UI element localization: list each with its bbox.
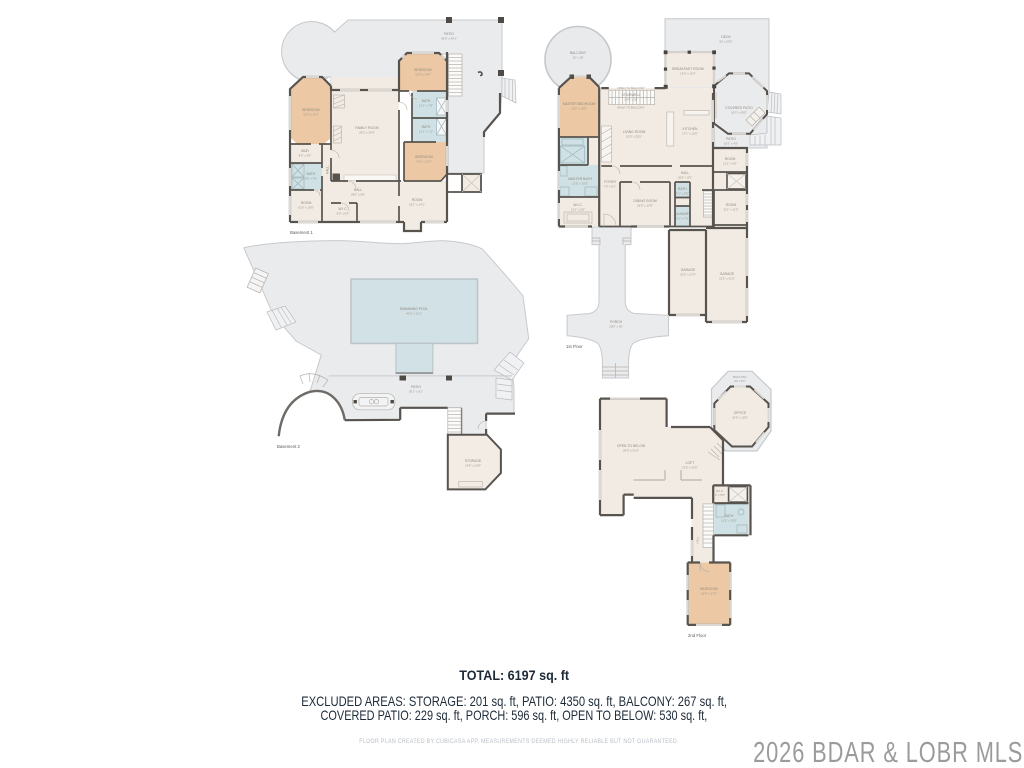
svg-text:HALL: HALL xyxy=(354,188,363,192)
svg-text:13'5" x 16'5": 13'5" x 16'5" xyxy=(682,466,698,470)
svg-text:20' x 18': 20' x 18' xyxy=(573,56,584,60)
svg-text:MASTER BEDROOM: MASTER BEDROOM xyxy=(563,102,596,106)
svg-text:29'2" x 30'9": 29'2" x 30'9" xyxy=(359,131,375,135)
svg-text:BALCONY: BALCONY xyxy=(570,51,587,55)
svg-text:PATIO: PATIO xyxy=(726,137,736,141)
svg-text:W.I.C.: W.I.C. xyxy=(573,203,582,207)
svg-text:ROOM: ROOM xyxy=(725,157,736,161)
svg-text:13'5" x 10'5": 13'5" x 10'5" xyxy=(572,182,588,186)
svg-text:OFFICE: OFFICE xyxy=(734,411,747,415)
svg-text:28'5" x 40': 28'5" x 40' xyxy=(609,325,623,329)
svg-text:12'1" x 7'1": 12'1" x 7'1" xyxy=(419,130,433,134)
svg-text:24'5" x 21'5": 24'5" x 21'5" xyxy=(623,449,639,453)
svg-text:ROOM: ROOM xyxy=(412,198,423,202)
svg-text:BATH: BATH xyxy=(422,99,431,103)
svg-text:8'0" x 6'9": 8'0" x 6'9" xyxy=(299,154,312,158)
svg-text:BATH: BATH xyxy=(307,172,316,176)
svg-text:9'6" x 7'6": 9'6" x 7'6" xyxy=(305,177,318,181)
svg-text:PATIO: PATIO xyxy=(444,32,454,36)
svg-text:LAUNDRY: LAUNDRY xyxy=(674,212,691,216)
svg-text:11'5" x 10'5": 11'5" x 10'5" xyxy=(721,519,737,523)
svg-text:16'5" x 15'5": 16'5" x 15'5" xyxy=(732,416,748,420)
svg-text:2nd Floor: 2nd Floor xyxy=(688,633,707,638)
svg-text:5'1" x 8'5": 5'1" x 8'5" xyxy=(676,192,689,196)
svg-text:COVERED PATIO: COVERED PATIO xyxy=(725,106,753,110)
svg-text:1st Floor: 1st Floor xyxy=(566,344,583,349)
svg-text:HALL: HALL xyxy=(696,536,700,544)
svg-text:5' x 5'5": 5' x 5'5" xyxy=(715,493,725,497)
svg-text:OPEN TO BELOW: OPEN TO BELOW xyxy=(617,444,646,448)
svg-text:12'9" x 14'6": 12'9" x 14'6" xyxy=(415,73,431,77)
svg-text:14'5" x 13'9": 14'5" x 13'9" xyxy=(465,464,481,468)
svg-text:ROOM: ROOM xyxy=(726,203,737,207)
svg-text:ROOM: ROOM xyxy=(301,201,312,205)
svg-text:BREAKFAST ROOM: BREAKFAST ROOM xyxy=(672,67,704,71)
svg-text:20' x 6'1": 20' x 6'1" xyxy=(734,379,746,383)
svg-text:BATH: BATH xyxy=(725,514,734,518)
svg-text:13'5" x 31'5": 13'5" x 31'5" xyxy=(719,277,735,281)
svg-text:BATH: BATH xyxy=(678,187,687,191)
svg-text:HALL: HALL xyxy=(681,171,690,175)
svg-text:12'5" x 27'5": 12'5" x 27'5" xyxy=(680,273,696,277)
svg-text:13'1" x 9'5": 13'1" x 9'5" xyxy=(571,208,585,212)
svg-text:8'5" x 6'5": 8'5" x 6'5" xyxy=(337,212,350,216)
svg-text:13'5" x 19'5": 13'5" x 19'5" xyxy=(571,107,587,111)
svg-text:KITCHEN: KITCHEN xyxy=(683,127,698,131)
svg-text:13'5" x 22'3": 13'5" x 22'3" xyxy=(303,113,319,117)
svg-text:46'6" x 49'1": 46'6" x 49'1" xyxy=(441,37,457,41)
svg-text:BEDROOM: BEDROOM xyxy=(700,587,718,591)
svg-text:LIVING ROOM: LIVING ROOM xyxy=(623,130,646,134)
svg-text:10'5" x 4'5": 10'5" x 4'5" xyxy=(724,142,738,146)
svg-text:BEDROOM: BEDROOM xyxy=(415,155,433,159)
svg-text:BEDROOM: BEDROOM xyxy=(414,68,432,72)
svg-text:GARAGE: GARAGE xyxy=(720,272,735,276)
svg-text:26'5" x 5'5": 26'5" x 5'5" xyxy=(678,176,692,180)
svg-text:LOFT: LOFT xyxy=(686,461,695,465)
svg-text:W.I.C.: W.I.C. xyxy=(338,207,347,211)
svg-text:GARAGE: GARAGE xyxy=(681,268,696,272)
svg-text:16'1" x 14'1": 16'1" x 14'1" xyxy=(409,203,425,207)
svg-text:SWIMMING POOL: SWIMMING POOL xyxy=(400,307,429,311)
svg-text:OPEN TO BALCONY: OPEN TO BALCONY xyxy=(617,86,645,90)
svg-text:11'1" x 6'5": 11'1" x 6'5" xyxy=(723,162,737,166)
svg-text:20'5" x 25'5": 20'5" x 25'5" xyxy=(626,135,642,139)
svg-text:FAMILY ROOM: FAMILY ROOM xyxy=(355,126,378,130)
svg-text:Basement 2: Basement 2 xyxy=(277,444,301,449)
svg-text:24'5" x 20': 24'5" x 20' xyxy=(624,98,638,102)
svg-text:7'5" x 9'1": 7'5" x 9'1" xyxy=(604,185,617,189)
svg-text:DINING ROOM: DINING ROOM xyxy=(633,199,657,203)
svg-text:BEDROOM: BEDROOM xyxy=(302,108,320,112)
svg-text:12'1" x 7'9": 12'1" x 7'9" xyxy=(419,104,433,108)
svg-text:MASTER BATH: MASTER BATH xyxy=(568,177,592,181)
svg-text:6'1" x 7'5": 6'1" x 7'5" xyxy=(676,217,689,221)
svg-text:STAIRWELL: STAIRWELL xyxy=(622,93,641,97)
svg-text:MUD: MUD xyxy=(301,149,309,153)
svg-text:Basement 1: Basement 1 xyxy=(290,230,314,235)
svg-text:29'6" x 5'9": 29'6" x 5'9" xyxy=(351,193,365,197)
svg-text:DECK: DECK xyxy=(721,35,731,39)
svg-text:13'9" x 17'5": 13'9" x 17'5" xyxy=(701,592,717,596)
svg-text:STORAGE: STORAGE xyxy=(465,459,482,463)
svg-text:FOYER: FOYER xyxy=(604,180,616,184)
svg-text:41'5" x 21'1": 41'5" x 21'1" xyxy=(406,312,422,316)
svg-text:HALL: HALL xyxy=(326,166,330,175)
svg-text:PORCH: PORCH xyxy=(610,320,623,324)
svg-text:11'1" x 11'5": 11'1" x 11'5" xyxy=(723,208,738,212)
svg-text:16'5" x 19'5": 16'5" x 19'5" xyxy=(731,111,747,115)
svg-text:WALK TO BALCONY: WALK TO BALCONY xyxy=(617,106,644,110)
svg-text:50' x 20'5": 50' x 20'5" xyxy=(719,40,732,44)
svg-text:16'5" x 13'9": 16'5" x 13'9" xyxy=(637,204,653,208)
svg-text:BATH: BATH xyxy=(422,125,431,129)
svg-text:14'1" x 13'1": 14'1" x 13'1" xyxy=(416,160,432,164)
svg-text:14'5" x 11'5": 14'5" x 11'5" xyxy=(680,72,696,76)
svg-text:PATIO: PATIO xyxy=(411,385,421,389)
svg-text:30'1" x 9'1": 30'1" x 9'1" xyxy=(409,390,423,394)
svg-text:17'1" x 16'5": 17'1" x 16'5" xyxy=(682,132,698,136)
svg-text:10'5" x 10'5": 10'5" x 10'5" xyxy=(298,206,314,210)
